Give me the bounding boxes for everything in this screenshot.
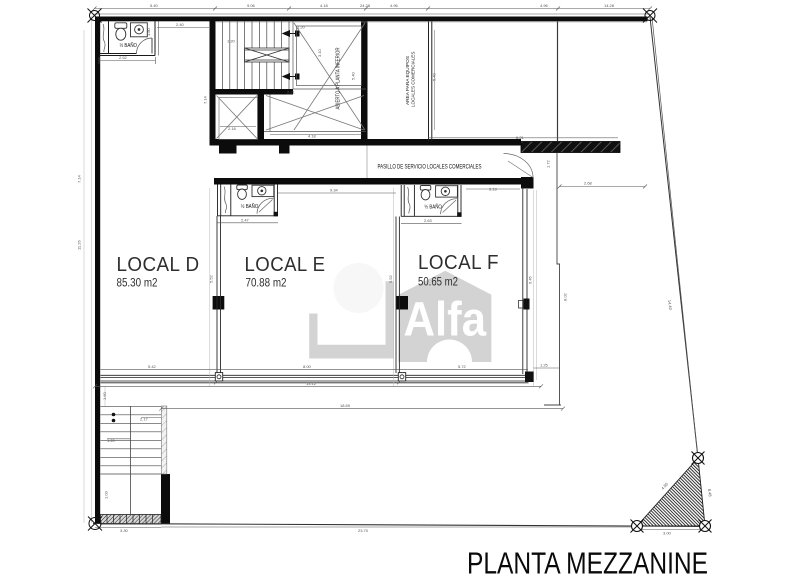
svg-text:14.28: 14.28 [604,3,615,8]
svg-text:1.03: 1.03 [104,490,109,499]
svg-text:3.10: 3.10 [317,48,322,57]
svg-text:½ BAÑO: ½ BAÑO [424,204,442,211]
svg-text:4.96: 4.96 [390,3,399,8]
svg-text:5.72: 5.72 [458,364,467,369]
svg-text:13.12: 13.12 [306,381,317,386]
svg-text:5.40: 5.40 [351,71,356,80]
svg-text:2.40: 2.40 [176,22,185,27]
svg-text:18.69: 18.69 [340,403,351,408]
svg-text:24.28: 24.28 [360,3,371,8]
svg-text:23.70: 23.70 [358,528,369,533]
svg-text:PASILLO DE SERVICIO LOCALES CO: PASILLO DE SERVICIO LOCALES COMERCIALES [378,165,482,171]
svg-text:6.45: 6.45 [528,275,533,284]
svg-text:5.40: 5.40 [150,3,159,8]
svg-text:ABIERTO A PLANTA INFERIOR: ABIERTO A PLANTA INFERIOR [336,47,342,109]
svg-text:½ BAÑO: ½ BAÑO [120,42,138,49]
svg-text:5.52: 5.52 [209,274,214,283]
svg-text:1.20: 1.20 [297,25,306,30]
svg-text:LOCAL D: LOCAL D [117,253,200,276]
svg-text:2.47: 2.47 [241,217,250,222]
svg-text:85.30 m2: 85.30 m2 [117,276,158,290]
svg-text:LOCAL E: LOCAL E [245,253,326,276]
svg-text:3.30: 3.30 [120,528,129,533]
svg-text:LOCALES COMERCIALES: LOCALES COMERCIALES [411,52,416,107]
svg-text:AREA PARA EQUIPOS: AREA PARA EQUIPOS [405,56,410,105]
svg-text:5.52: 5.52 [388,274,393,283]
svg-text:7.14: 7.14 [77,174,82,183]
svg-text:6.21: 6.21 [516,135,525,140]
svg-text:3.00: 3.00 [663,531,672,536]
svg-text:½ BAÑO: ½ BAÑO [241,203,258,210]
svg-text:70.88 m2: 70.88 m2 [246,276,287,290]
svg-text:5.42: 5.42 [148,364,157,369]
svg-text:11.26: 11.26 [77,240,82,250]
svg-text:8.02: 8.02 [563,292,568,301]
svg-text:2.63: 2.63 [424,218,433,223]
svg-text:1.60: 1.60 [102,391,107,400]
svg-text:5.40: 5.40 [432,72,437,81]
svg-text:4.96: 4.96 [540,3,549,8]
svg-text:9.06: 9.06 [247,3,256,8]
svg-text:1.72: 1.72 [546,159,551,168]
svg-text:7.14: 7.14 [203,95,208,104]
svg-text:2.52: 2.52 [119,55,128,60]
svg-text:9.34: 9.34 [330,188,339,193]
svg-text:LOCAL F: LOCAL F [418,251,499,274]
svg-text:2.21: 2.21 [287,90,296,95]
svg-text:8.00: 8.00 [303,364,312,369]
svg-text:2.68: 2.68 [584,181,593,186]
svg-text:PLANTA MEZZANINE: PLANTA MEZZANINE [467,546,708,581]
svg-text:1.25: 1.25 [540,363,549,368]
svg-text:50.65 m2: 50.65 m2 [418,275,458,289]
svg-text:Alfa: Alfa [404,294,487,347]
svg-text:1.20: 1.20 [227,39,236,44]
svg-text:1.80: 1.80 [146,27,151,36]
svg-text:8.48: 8.48 [707,489,713,498]
svg-text:4.18: 4.18 [320,3,329,8]
